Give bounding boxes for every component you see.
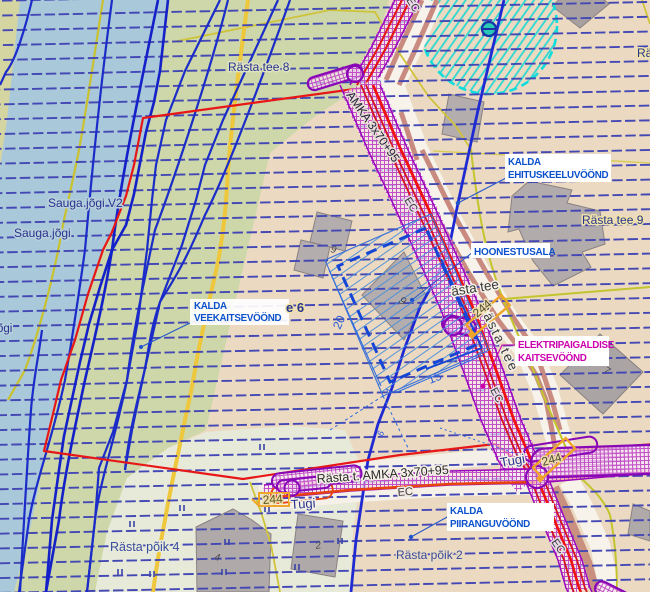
svg-text:244: 244: [262, 492, 283, 507]
svg-text:Tugi: Tugi: [290, 495, 316, 512]
svg-text:Sauga jõgi V2: Sauga jõgi V2: [48, 196, 123, 210]
svg-text:HOONESTUSALA: HOONESTUSALA: [474, 247, 556, 258]
svg-text:Rästa tee 9: Rästa tee 9: [582, 213, 644, 227]
svg-text:KAITSEVÖÖND: KAITSEVÖÖND: [518, 353, 587, 364]
svg-text:EHITUSKEELUVÖÖND: EHITUSKEELUVÖÖND: [508, 170, 608, 181]
svg-text:KALDA: KALDA: [450, 506, 483, 517]
svg-text:ELEKTRIPAIGALDISE: ELEKTRIPAIGALDISE: [518, 340, 615, 351]
svg-text:PIIRANGUVÖÖND: PIIRANGUVÖÖND: [450, 519, 530, 530]
svg-text:VEEKAITSEVÖÖND: VEEKAITSEVÖÖND: [194, 313, 281, 324]
svg-text:õgi: õgi: [0, 323, 12, 335]
svg-text:Rästa tee 8: Rästa tee 8: [228, 60, 290, 74]
svg-text:KALDA: KALDA: [194, 301, 227, 312]
svg-text:Sauga jõgi: Sauga jõgi: [14, 226, 71, 240]
svg-text:KALDA: KALDA: [508, 157, 541, 168]
svg-text:Rästa põik 2: Rästa põik 2: [396, 548, 463, 562]
svg-text:Rästa põik 4: Rästa põik 4: [110, 540, 180, 554]
svg-text:Rä: Rä: [637, 46, 650, 60]
svg-text:EC: EC: [397, 486, 413, 499]
svg-text:e 6: e 6: [286, 300, 304, 315]
